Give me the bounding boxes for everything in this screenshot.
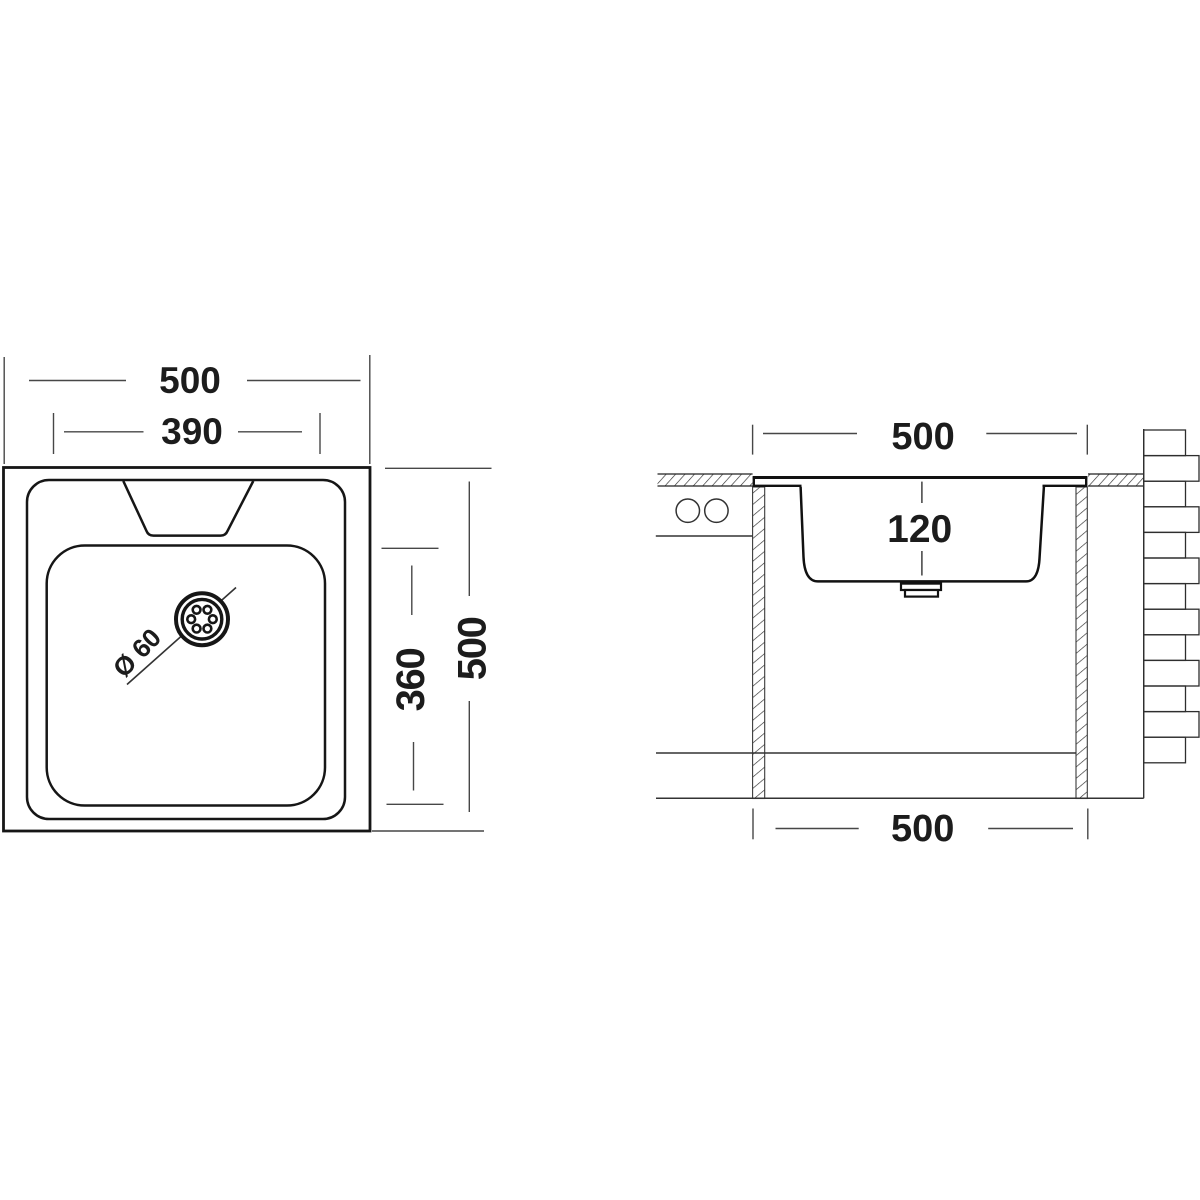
svg-text:360: 360: [389, 649, 433, 712]
svg-text:500: 500: [891, 808, 954, 850]
svg-text:120: 120: [887, 508, 952, 551]
svg-text:500: 500: [891, 416, 954, 458]
svg-text:500: 500: [450, 617, 494, 680]
svg-text:Ø 60: Ø 60: [107, 623, 167, 684]
svg-text:390: 390: [161, 411, 223, 452]
svg-text:500: 500: [159, 360, 221, 401]
